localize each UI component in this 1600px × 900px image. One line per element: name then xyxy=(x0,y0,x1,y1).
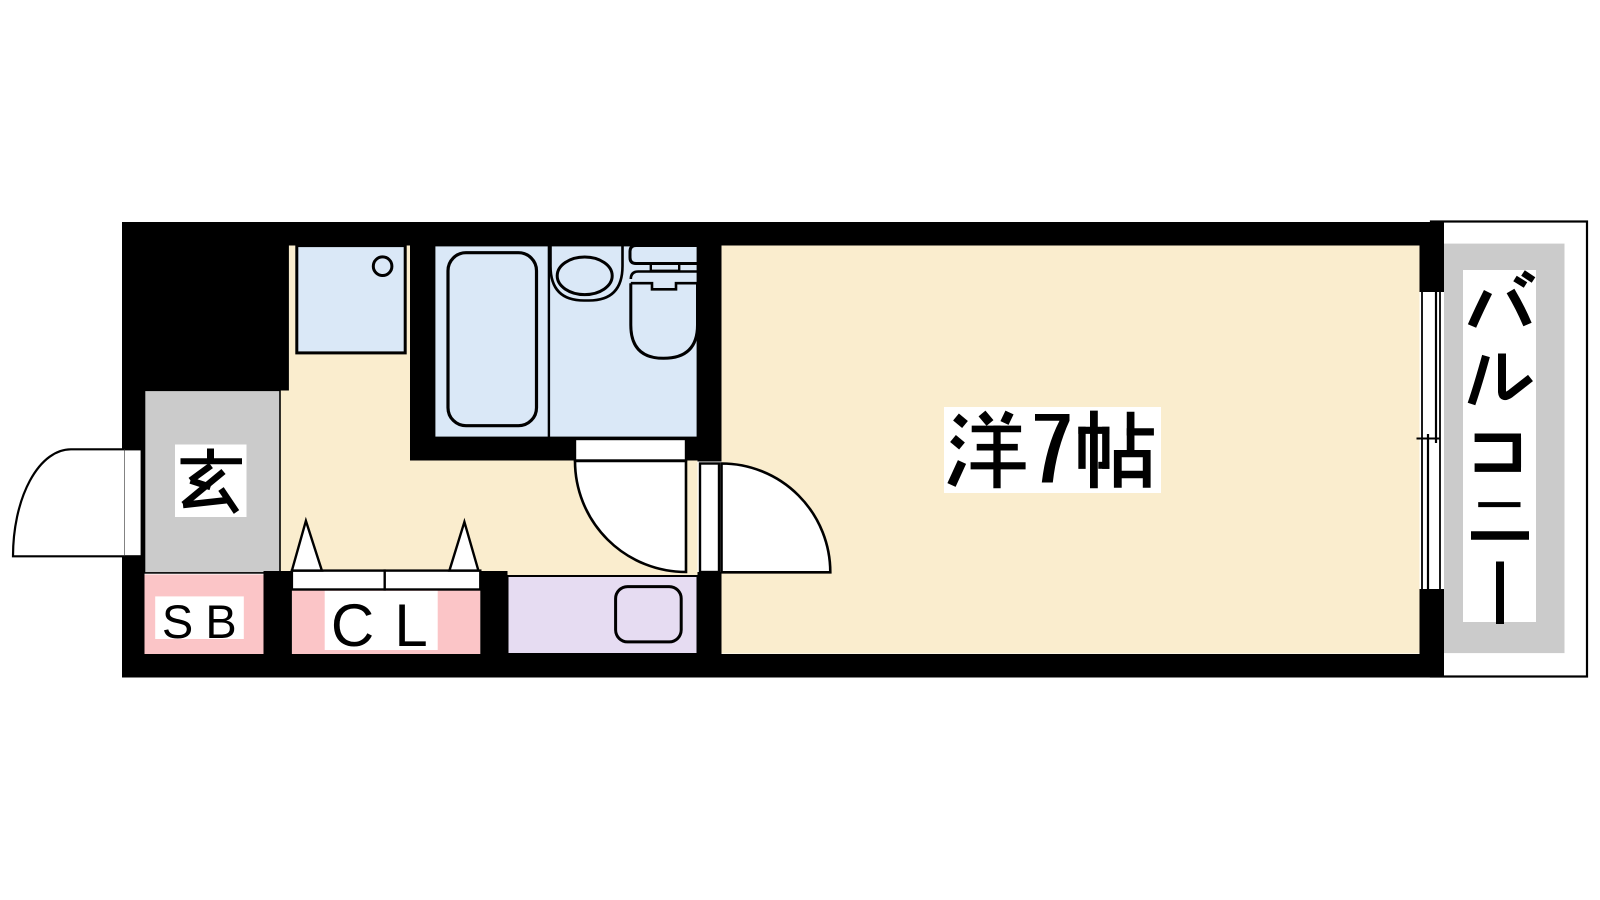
svg-text:S: S xyxy=(162,595,193,648)
svg-text:C: C xyxy=(331,592,374,659)
svg-text:B: B xyxy=(205,595,236,648)
svg-text:L: L xyxy=(394,592,427,659)
